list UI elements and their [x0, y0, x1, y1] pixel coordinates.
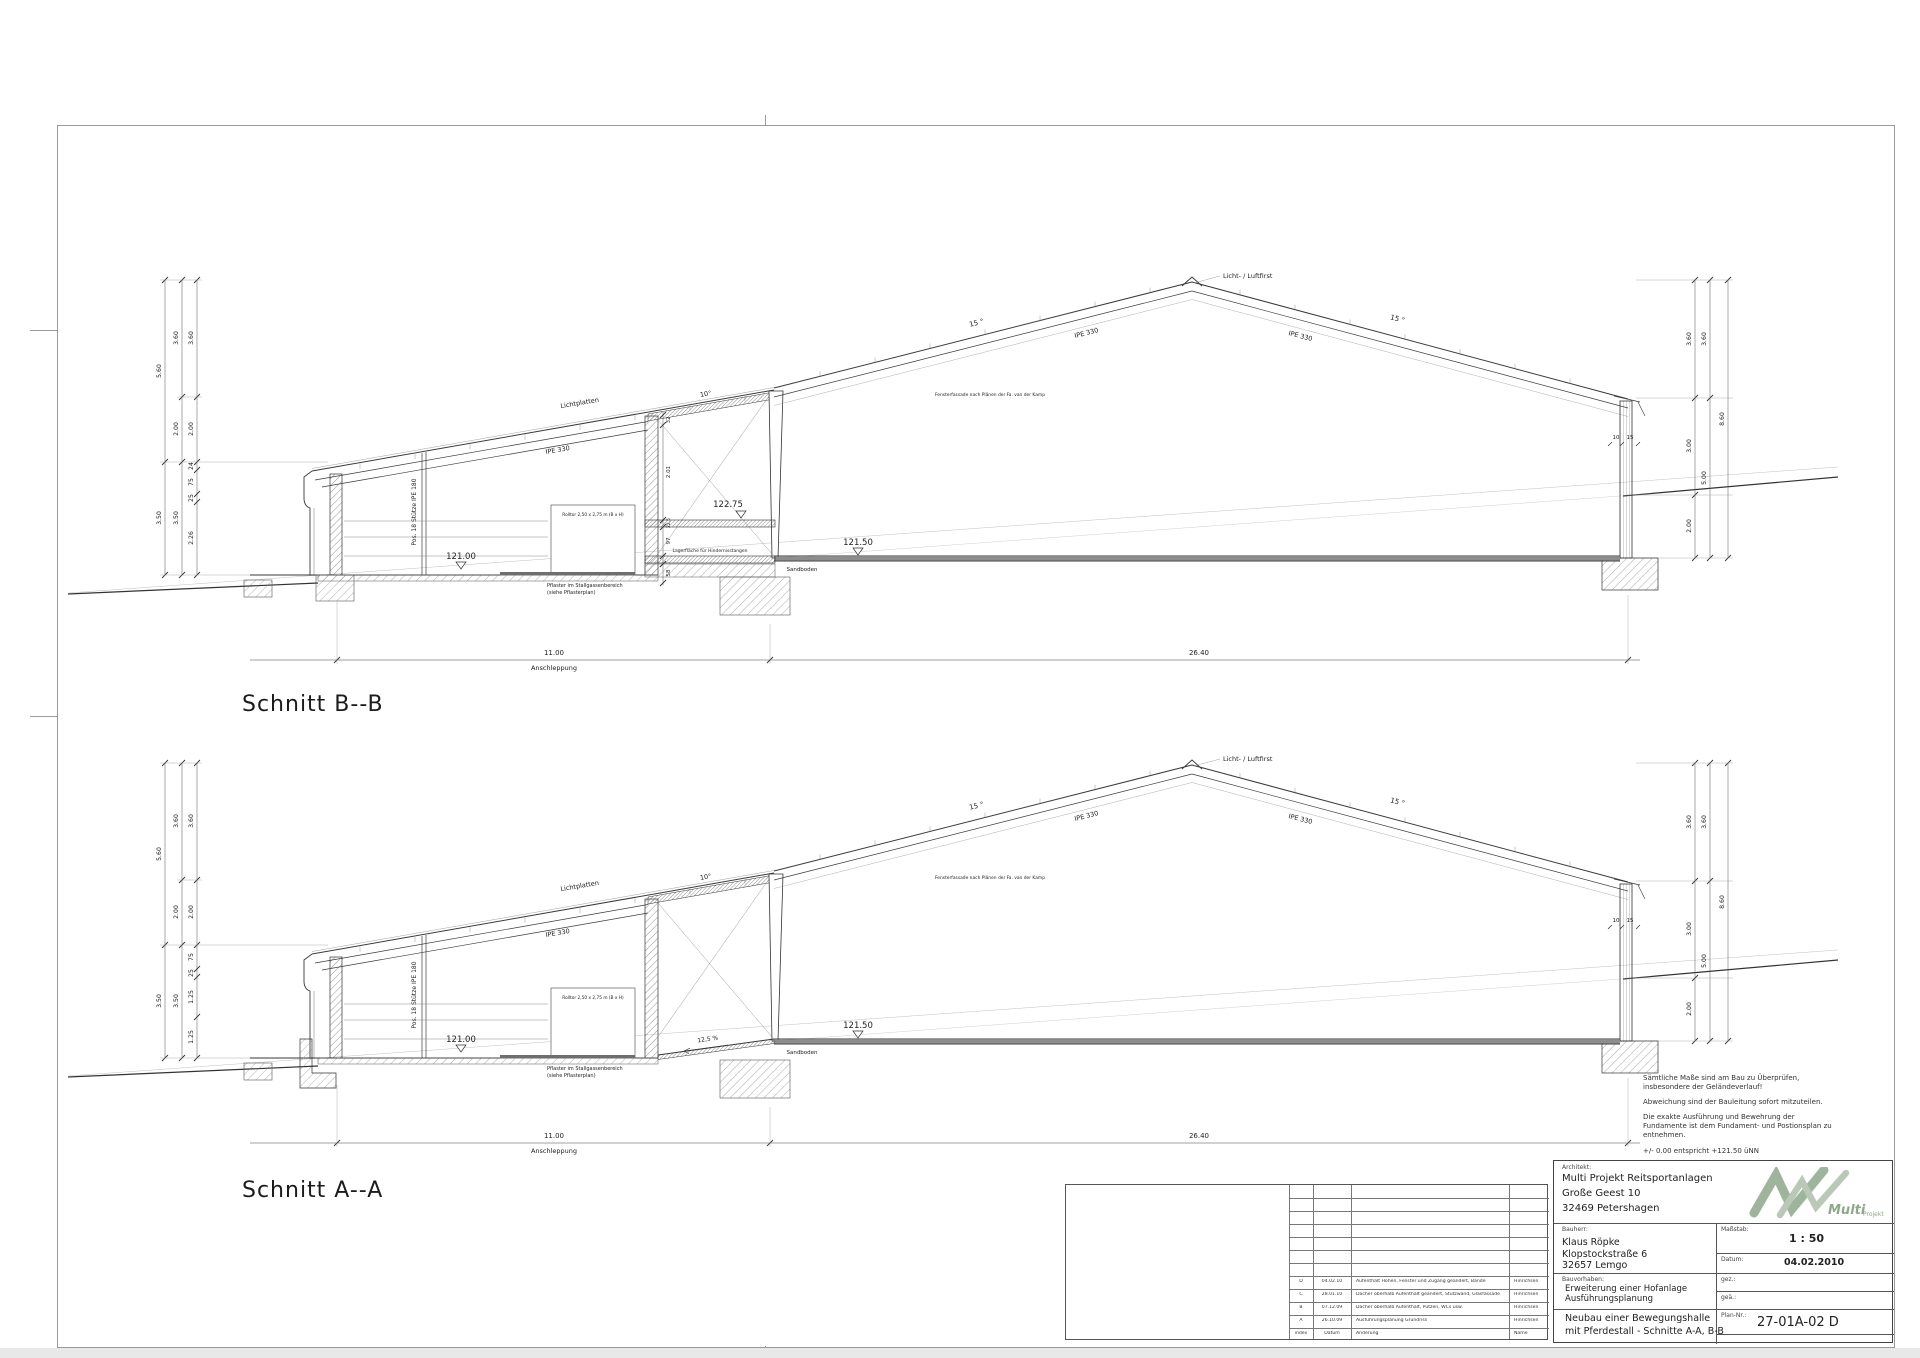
dim-label: 3.60: [173, 331, 180, 345]
paving-strip: [500, 1055, 635, 1059]
terrain-line: [68, 1066, 318, 1077]
architect-name: Multi Projekt Reitsportanlagen: [1562, 1173, 1713, 1184]
sand-floor-label: Sandboden: [786, 1050, 818, 1056]
ridge-label: Licht- / Luftfirst: [1223, 755, 1273, 763]
revision-datum: 26.10.09: [1314, 1318, 1350, 1323]
foundation: [720, 577, 790, 615]
drawing-line: [1192, 300, 1628, 417]
revision-datum: Datum: [1314, 1331, 1350, 1336]
table-row-divider: [1289, 1237, 1549, 1238]
ramp-slope-label: 12,5 %: [697, 1035, 719, 1045]
dim-label: 75: [188, 478, 195, 486]
drawing-line: [774, 783, 1192, 889]
dim-tick: [1636, 442, 1640, 446]
drawing-line: [774, 774, 1192, 880]
revision-aenderung: Aufenthalt Höhen, Fenster und Zugang geä…: [1356, 1279, 1506, 1284]
dim-label: 32: [666, 417, 672, 424]
revision-datum: 04.02.10: [1314, 1279, 1350, 1284]
paving-note: Pflaster im Stallgassenbereich: [547, 583, 623, 589]
revision-name: Hinrichsen: [1514, 1305, 1548, 1310]
rolltor-label: Rolltor 2,50 x 2,75 m (B x H): [562, 995, 624, 1001]
roof-angle-label: 10°: [699, 389, 712, 399]
table-row-divider: [1289, 1263, 1549, 1264]
project-label: Bauvorhaben:: [1562, 1276, 1604, 1283]
drawing-line: [322, 913, 648, 970]
dim-label: 25: [188, 494, 195, 502]
ipe-beam-label: IPE 330: [545, 444, 570, 456]
plan-no-label: Plan-Nr.:: [1721, 1312, 1746, 1319]
note-datum: +/- 0.00 entspricht +121.50 üNN: [1643, 1147, 1833, 1156]
revised-by-label: geä.:: [1721, 1294, 1736, 1301]
project-line1: Erweiterung einer Hofanlage: [1565, 1284, 1687, 1294]
drawing-line: [1192, 282, 1628, 399]
drawing-line: [658, 879, 769, 1037]
hall-column: [769, 391, 783, 558]
client-name: Klaus Röpke: [1562, 1237, 1620, 1248]
ipe-beam-label: IPE 330: [1074, 809, 1100, 823]
dim-label: 3.60: [1701, 332, 1708, 346]
revision-aenderung: Dächer oberhalb Aufenthalt geändert, Stü…: [1356, 1292, 1506, 1297]
terrain-line: [68, 583, 318, 594]
sheet-edge-shadow: [0, 1348, 1920, 1358]
revision-index: B: [1289, 1305, 1313, 1310]
drawing-line: [658, 420, 772, 554]
rolltor-label: Rolltor 2,50 x 2,75 m (B x H): [562, 512, 624, 518]
dim-label: 2.00: [1686, 519, 1693, 533]
revision-name: Hinrichsen: [1514, 1318, 1548, 1323]
table-row-divider: [1289, 1250, 1549, 1251]
dim-label: 24: [188, 462, 195, 470]
dim-label: 3.60: [1701, 815, 1708, 829]
paving-note: (siehe Pflasterplan): [547, 590, 596, 596]
dim-label: 2.01: [666, 466, 672, 478]
level-label: 121.00: [446, 1035, 476, 1045]
logo-brand-text: Multi: [1828, 1203, 1866, 1218]
sheet-title-line1: Neubau einer Bewegungshalle: [1565, 1313, 1710, 1324]
dim-label: 3.60: [188, 331, 195, 345]
table-row-divider: [1289, 1302, 1549, 1303]
roof-angle-label: 15 °: [968, 800, 984, 811]
date-label: Datum:: [1721, 1256, 1743, 1263]
client-street: Klopstockstraße 6: [1562, 1249, 1647, 1260]
scale-value: 1 : 50: [1789, 1232, 1824, 1245]
table-row-divider: [1289, 1224, 1549, 1225]
foundation: [244, 580, 272, 597]
architect-city: 32469 Petershagen: [1562, 1203, 1660, 1214]
revision-name: Hinrichsen: [1514, 1292, 1548, 1297]
dim-label: 15: [1627, 435, 1634, 441]
gutter-downpipe: [304, 471, 312, 575]
paving-note: Pflaster im Stallgassenbereich: [547, 1066, 623, 1072]
hall-column: [769, 874, 783, 1041]
anschleppung-label: Anschleppung: [531, 664, 577, 672]
revision-index: C: [1289, 1292, 1313, 1297]
dim-label: 2.00: [173, 422, 180, 436]
dim-label: 3.50: [173, 994, 180, 1008]
drawing-line: [312, 388, 774, 469]
support-column-label: Pos. 18 Stütze IPE 180: [411, 961, 418, 1028]
dim-label: 25: [188, 969, 195, 977]
drawing-line: [1194, 759, 1220, 766]
paving-strip: [500, 572, 635, 576]
drawing-line: [1192, 783, 1628, 900]
drawing-line: [774, 291, 1192, 397]
revision-index: index: [1289, 1331, 1313, 1336]
corridor-base: [645, 564, 775, 577]
dim-label: 3.60: [173, 814, 180, 828]
project-line2: Ausführungsplanung: [1565, 1294, 1653, 1304]
drawing-line: [658, 396, 769, 554]
dim-label: 97: [666, 537, 672, 544]
hall-right-wall: [1620, 884, 1632, 1041]
drawing-line: [1638, 402, 1645, 416]
table-row-divider: [1289, 1328, 1549, 1329]
window-facade-note: Fensterfassade nach Plänen der Fa. van d…: [935, 875, 1045, 881]
dim-label: 75: [188, 953, 195, 961]
window-facade-note: Fensterfassade nach Plänen der Fa. van d…: [935, 392, 1045, 398]
foundation: [1602, 558, 1658, 590]
sheet-title-line2: mit Pferdestall - Schnitte A-A, B-B: [1565, 1326, 1724, 1337]
fold-mark: [30, 716, 57, 717]
sand-floor: [774, 1040, 1620, 1044]
drawing-line: [1194, 276, 1220, 283]
revision-datum: 28.01.10: [1314, 1292, 1350, 1297]
drawing-line: [774, 300, 1192, 406]
dim-label: 1.25: [188, 990, 195, 1004]
revision-name: Hinrichsen: [1514, 1279, 1548, 1284]
dim-label: 5.60: [156, 847, 163, 861]
foundation: [316, 575, 354, 601]
level-marker: [736, 511, 746, 518]
note-deviations: Abweichung sind der Bauleitung sofort mi…: [1643, 1098, 1833, 1107]
dim-label: 3.60: [188, 814, 195, 828]
table-row-divider: [1289, 1211, 1549, 1212]
foundation: [1602, 1041, 1658, 1073]
anschleppung-label: Anschleppung: [531, 1147, 577, 1155]
dim-label: 3.50: [156, 511, 163, 525]
dim-label: 3.60: [1686, 332, 1693, 346]
roof-angle-label: 15 °: [1389, 796, 1405, 807]
dim-label: 3.60: [1686, 815, 1693, 829]
drawn-by-label: gez.:: [1721, 1276, 1736, 1283]
dim-label: 10: [1613, 435, 1620, 441]
interior-wall: [645, 416, 658, 575]
drawing-line: [774, 282, 1192, 388]
drawing-line: [315, 422, 648, 481]
drawing-line: [1192, 765, 1628, 882]
drawing-line: [312, 873, 774, 954]
dim-label: 2.00: [173, 905, 180, 919]
level-label: 121.50: [843, 538, 873, 548]
dim-label: 3.50: [156, 994, 163, 1008]
general-notes: Sämtliche Maße sind am Bau zu Überprüfen…: [1643, 1074, 1833, 1162]
dim-tick: [1608, 925, 1612, 929]
level-label: 121.50: [843, 1021, 873, 1031]
level-label: 122.75: [713, 500, 743, 510]
section-a-a-drawing: 5.603.503.602.003.503.602.0075251.251.25…: [60, 673, 1840, 1173]
dim-label: 2.00: [1686, 1002, 1693, 1016]
drawing-line: [312, 390, 774, 471]
section-b-b-drawing: 5.603.503.602.003.503.602.002475252.263.…: [60, 190, 1840, 690]
plan-no-value: 27-01A-02 D: [1757, 1315, 1839, 1330]
revision-aenderung: Ausführungsplanung Grundriss: [1356, 1318, 1506, 1323]
revision-aenderung: Änderung: [1356, 1331, 1506, 1336]
ipe-beam-label: IPE 330: [1074, 326, 1100, 340]
lichtplatten-label: Lichtplatten: [560, 879, 600, 893]
client-label: Bauherr:: [1562, 1226, 1588, 1233]
drawing-line: [658, 903, 772, 1037]
table-row-divider: [1289, 1198, 1549, 1199]
table-row-divider: [1289, 1289, 1549, 1290]
roof-angle-label: 15 °: [968, 317, 984, 328]
table-row-divider: [1289, 1276, 1549, 1277]
fold-mark: [765, 115, 766, 125]
dim-label: 10: [1613, 918, 1620, 924]
logo-suffix-text: Projekt: [1863, 1211, 1884, 1218]
ipe-beam-label: IPE 330: [545, 927, 570, 939]
foundation: [720, 1060, 790, 1098]
drawing-sheet: 5.603.503.602.003.503.602.002475252.263.…: [0, 0, 1920, 1358]
architect-street: Große Geest 10: [1562, 1188, 1640, 1199]
revision-index: D: [1289, 1279, 1313, 1284]
dim-label: 3.50: [173, 511, 180, 525]
roof-angle-label: 15 °: [1389, 313, 1405, 324]
lichtplatten-label: Lichtplatten: [560, 396, 600, 410]
dim-label: 58: [666, 569, 672, 576]
scale-label: Maßstab:: [1721, 1226, 1749, 1233]
foundation: [244, 1063, 272, 1080]
client-city: 32657 Lemgo: [1562, 1260, 1627, 1271]
revision-table: D04.02.10Aufenthalt Höhen, Fenster und Z…: [1065, 1184, 1548, 1340]
drawing-line: [1192, 291, 1628, 408]
support-column-label: Pos. 18 Stütze IPE 180: [411, 478, 418, 545]
floor-slab: [318, 1058, 658, 1064]
storage-label: Lagerfläche für Hindernisstangen: [672, 548, 747, 554]
drawing-line: [312, 871, 774, 952]
stable-outer-wall: [330, 957, 342, 1058]
dim-label: 26.40: [1189, 1132, 1209, 1140]
dim-label: 2.26: [188, 531, 195, 545]
section-a-a-title: Schnitt A--A: [242, 1178, 383, 1203]
dim-label: 15: [1627, 918, 1634, 924]
title-block: Architekt: Multi Projekt Reitsportanlage…: [1553, 1160, 1893, 1343]
paving-note: (siehe Pflasterplan): [547, 1073, 596, 1079]
ridge-label: Licht- / Luftfirst: [1223, 272, 1273, 280]
revision-index: A: [1289, 1318, 1313, 1323]
multi-projekt-logo: Multi Projekt: [1746, 1167, 1888, 1221]
drawing-line: [774, 765, 1192, 871]
floor-slab: [318, 575, 658, 581]
table-row-divider: [1289, 1315, 1549, 1316]
drawing-line: [1638, 885, 1645, 899]
sand-floor: [774, 557, 1620, 561]
interior-wall: [645, 899, 658, 1058]
date-value: 04.02.2010: [1784, 1257, 1844, 1268]
dim-tick: [1608, 442, 1612, 446]
dim-label: 1.25: [188, 1030, 195, 1044]
drawing-line: [774, 496, 1620, 558]
level-label: 121.00: [446, 552, 476, 562]
dim-label: 5.60: [156, 364, 163, 378]
dim-label: 11.00: [544, 1132, 564, 1140]
drawing-line: [1192, 774, 1628, 891]
note-check-dimensions: Sämtliche Maße sind am Bau zu Überprüfen…: [1643, 1074, 1833, 1092]
dim-label: 3.00: [1686, 439, 1693, 453]
dim-tick: [1636, 925, 1640, 929]
drawing-line: [322, 430, 648, 487]
note-foundations: Die exakte Ausführung und Bewehrung der …: [1643, 1113, 1833, 1140]
roof-angle-label: 10°: [699, 872, 712, 882]
dim-label: 5.00: [1701, 471, 1708, 485]
dim-label: 26.40: [1189, 649, 1209, 657]
dim-label: 2.00: [188, 422, 195, 436]
revision-aenderung: Dächer oberhalb Aufenthalt, Putzen, WCs …: [1356, 1305, 1506, 1310]
drawing-line: [315, 905, 648, 964]
section-b-b-title: Schnitt B--B: [242, 692, 384, 717]
revision-name: Name: [1514, 1331, 1548, 1336]
fold-mark: [30, 330, 57, 331]
ramp-slab: [658, 1039, 774, 1060]
dim-label: 3.00: [1686, 922, 1693, 936]
dim-label: 11.00: [544, 649, 564, 657]
drawing-line: [774, 979, 1620, 1041]
dim-label: 22,5: [666, 518, 672, 528]
dim-label: 8.60: [1719, 895, 1726, 909]
sand-floor-label: Sandboden: [786, 567, 818, 573]
dim-label: 5.00: [1701, 954, 1708, 968]
stable-outer-wall: [330, 474, 342, 575]
dim-label: 8.60: [1719, 412, 1726, 426]
dim-label: 2.00: [188, 905, 195, 919]
architect-label: Architekt:: [1562, 1164, 1591, 1171]
revision-datum: 07.12.09: [1314, 1305, 1350, 1310]
hall-right-wall: [1620, 401, 1632, 558]
